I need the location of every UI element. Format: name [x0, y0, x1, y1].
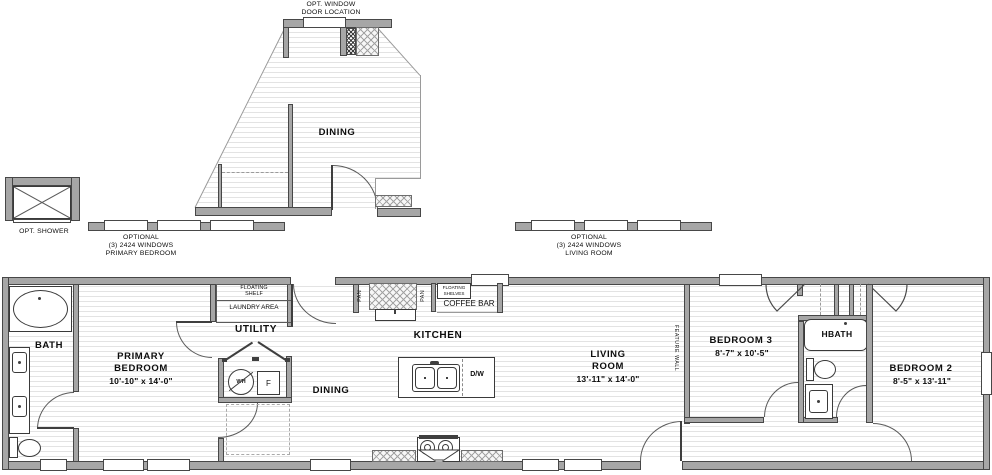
utility-hall-wall-lower — [218, 438, 224, 462]
coffee-bar-label: COFFEE BAR — [443, 300, 494, 309]
living-room-label-1: LIVING — [590, 350, 625, 360]
utility-closet-right-wall — [286, 356, 292, 403]
bifold-hinge-left — [222, 358, 227, 362]
kitchen-counter-hatch-bottom-right — [461, 450, 503, 462]
kitchen-label: KITCHEN — [414, 330, 463, 341]
opt-windows-living-note-2: (3) 2424 WINDOWS — [557, 242, 622, 249]
hbath-toilet-tank — [806, 358, 814, 381]
bath-bedroom-wall-upper — [73, 284, 79, 392]
primary-bottom-window-2 — [147, 459, 190, 471]
dining-counter-hatch — [375, 195, 412, 207]
shower-x-icon — [14, 187, 70, 218]
feature-wall-label: FEATURE WALL — [673, 325, 679, 385]
bath-bottom-window — [40, 459, 67, 471]
tub-drain-icon — [38, 297, 41, 300]
primary-bedroom-label-1: PRIMARY — [117, 352, 165, 362]
range-backsplash — [419, 435, 458, 439]
pantry-right-label: PAN — [420, 290, 426, 302]
bifold-hinge-right — [285, 358, 290, 362]
floating-shelves-label-1: FLOATING — [443, 285, 466, 290]
primary-bottom-window-1 — [103, 459, 144, 471]
kitchen-living-wall-stub — [497, 283, 503, 313]
kitchen-top-window — [471, 274, 509, 286]
dining-pantry-hatch — [356, 27, 379, 56]
primary-bedroom-label-2: BEDROOM — [114, 364, 168, 374]
dining-label: DINING — [313, 386, 350, 396]
sink-drain-left-icon — [424, 377, 426, 379]
hbath-toilet-bowl — [814, 360, 836, 379]
opt-shower-curb — [13, 219, 71, 223]
opt-window-door-note-line1: OPT. WINDOW — [306, 1, 355, 8]
living-room-label-2: ROOM — [592, 362, 624, 372]
range-front-icon — [417, 449, 461, 462]
opt-shower-left-wall — [5, 177, 13, 221]
dining-bottom-wall-right — [377, 208, 421, 217]
bedroom3-bottom-wall — [684, 417, 764, 423]
optional-dining-label: DINING — [319, 128, 356, 138]
bath-bedroom-wall-lower — [73, 428, 79, 462]
dashed-option-area — [226, 404, 290, 455]
opt-window-living-3 — [637, 220, 681, 231]
opt-shower-top-wall — [5, 177, 80, 186]
dining-top-left-stub — [283, 27, 289, 58]
hbath-label: HBATH — [821, 330, 852, 339]
opt-window-primary-2 — [157, 220, 201, 231]
bedroom2-left-wall — [866, 284, 873, 423]
opt-window-door-note-line2: DOOR LOCATION — [301, 9, 360, 16]
opt-window-living-1 — [531, 220, 575, 231]
cabinet-tick — [394, 309, 396, 314]
opt-shower-pan — [13, 186, 71, 219]
opt-window-living-2 — [584, 220, 628, 231]
entry-door-opening — [640, 461, 683, 470]
opt-shower-right-wall — [71, 177, 80, 221]
bedroom3-dims: 8'-7" x 10'-5" — [715, 349, 769, 358]
toilet-tank — [9, 437, 18, 458]
closet-doors-icon — [740, 282, 940, 322]
entry-door-leaf — [680, 421, 682, 461]
opt-window-primary-3 — [210, 220, 254, 231]
dining-bottom-window — [310, 459, 351, 471]
sink-faucet-icon — [430, 361, 439, 365]
pantry-left: PAN — [352, 283, 368, 309]
dining-bottom-wall-left — [195, 207, 332, 216]
freezer-label: F — [266, 379, 271, 388]
opt-shower-label: OPT. SHOWER — [19, 228, 69, 235]
bath-label: BATH — [35, 341, 63, 351]
dining-dashed-counter — [222, 172, 288, 173]
bifold-catch — [252, 357, 259, 361]
dining-interior-wall — [288, 104, 293, 212]
feature-wall — [684, 284, 690, 424]
pantry-right: PAN — [415, 283, 431, 309]
kitchen-counter-hatch-top — [369, 283, 417, 310]
opt-windows-primary-note-3: PRIMARY BEDROOM — [106, 250, 177, 257]
opt-windows-living-note-3: LIVING ROOM — [565, 250, 613, 257]
primary-bedroom-dims: 10'-10" x 14'-0" — [109, 377, 173, 386]
utility-label: UTILITY — [235, 324, 277, 335]
bath-sink-2-drain-icon — [18, 405, 21, 408]
dining-window-symbol — [346, 28, 356, 55]
opt-window-primary-1 — [104, 220, 148, 231]
dishwasher-dashed-line — [462, 359, 463, 396]
hbath-tub-faucet-icon — [844, 322, 847, 325]
dining-stub-wall — [218, 164, 222, 208]
back-door-leaf — [291, 284, 293, 326]
bath-door-leaf — [37, 427, 74, 429]
bedroom3-label: BEDROOM 3 — [710, 336, 773, 346]
tub — [13, 290, 68, 328]
sink-drain-right-icon — [446, 377, 448, 379]
laundry-area-label: LAUNDRY AREA — [229, 304, 278, 311]
dining-notch-edge-h — [375, 178, 421, 179]
living-room-dims: 13'-11" x 14'-0" — [576, 375, 639, 384]
bedroom-door-leaf — [176, 321, 212, 323]
dining-right-edge — [420, 75, 421, 178]
bedroom2-label: BEDROOM 2 — [890, 364, 953, 374]
bedroom2-right-window — [981, 352, 992, 395]
main-left-wall — [2, 277, 9, 470]
floating-shelf-label-2: SHELF — [245, 292, 263, 298]
opt-windows-primary-note-1: OPTIONAL — [123, 234, 159, 241]
floating-shelf-edge — [216, 300, 293, 301]
floating-shelves-label-2: SHELVES — [444, 291, 465, 296]
optional-dining-floor — [195, 28, 431, 209]
dishwasher-label: D/W — [470, 371, 484, 379]
pantry-wall-right — [431, 283, 436, 312]
freezer: F — [257, 371, 280, 395]
hbath-sink-drain-icon — [817, 400, 820, 403]
living-bottom-window-2 — [564, 459, 602, 471]
pantry-left-label: PAN — [357, 290, 363, 302]
coffee-bar-counter-edge — [437, 312, 503, 313]
bath-sink-1-drain-icon — [18, 361, 21, 364]
living-bottom-window-1 — [522, 459, 559, 471]
toilet-bowl — [18, 439, 41, 457]
kitchen-counter-hatch-bottom-left — [372, 450, 416, 462]
bedroom2-dims: 8'-5" x 13'-11" — [893, 377, 951, 386]
floorplan-canvas: OPT. WINDOW DOOR LOCATION DINING OPT. SH… — [0, 0, 992, 475]
opt-windows-primary-note-2: (3) 2424 WINDOWS — [109, 242, 174, 249]
opt-windows-living-note-1: OPTIONAL — [571, 234, 607, 241]
